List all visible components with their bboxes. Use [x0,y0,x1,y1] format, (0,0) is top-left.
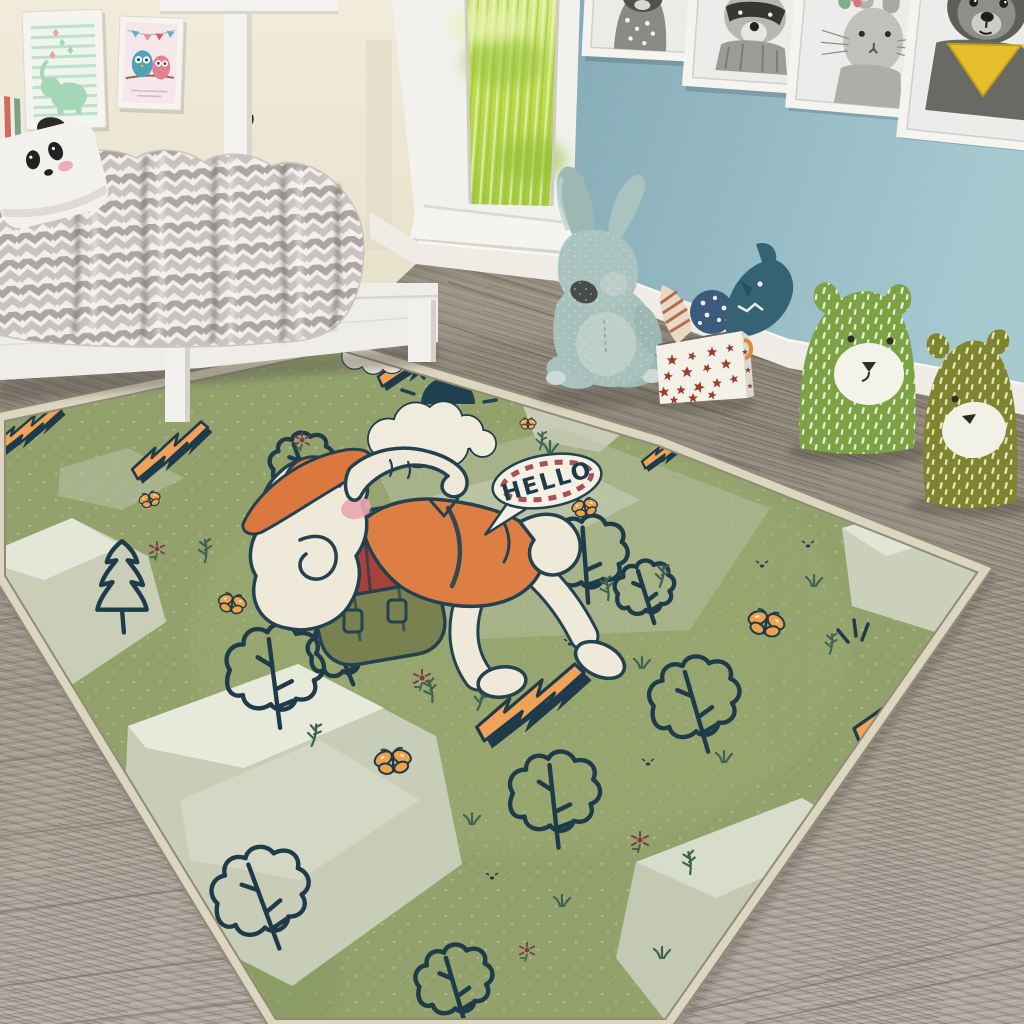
bunny-shadow [536,385,664,407]
shark-eye [757,281,762,286]
pouf-eye [886,337,893,344]
room-photo: HELLO [0,0,1024,1024]
pouf-eye [847,335,854,342]
nursery-print-elephant-frame [22,9,109,134]
nursery-print-owls-frame [117,16,187,114]
pouf-eye [952,396,959,403]
portrait-frame-bear [896,0,1024,154]
window [392,0,580,262]
room-scene-svg: HELLO [0,0,1024,1024]
